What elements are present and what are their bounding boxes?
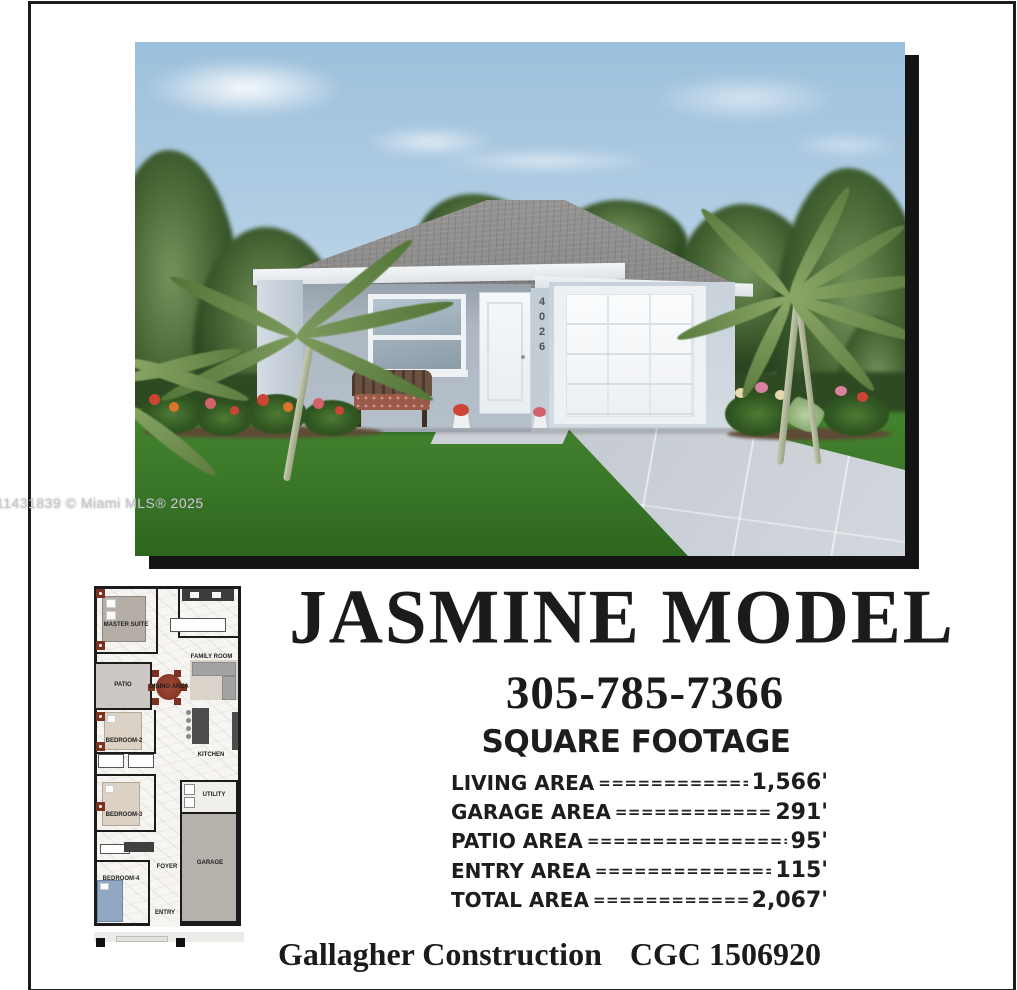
bed <box>97 880 123 922</box>
square-footage-table: LIVING AREA ============================… <box>451 768 828 915</box>
palm-trunk <box>283 342 314 481</box>
chair <box>174 670 181 677</box>
pillow <box>100 883 109 890</box>
sqft-row-total: TOTAL AREA =============================… <box>451 886 828 915</box>
sqft-value: 1,566' <box>752 770 828 795</box>
palm-tree-right <box>690 232 905 492</box>
cloud <box>650 74 840 122</box>
nightstand <box>96 589 105 598</box>
flyer-page: 4026 <box>0 0 1017 990</box>
bath-vanity <box>124 842 154 852</box>
sqft-row-entry: ENTRY AREA =============================… <box>451 856 828 885</box>
sqft-value: 291' <box>775 800 828 825</box>
bath-counter <box>182 589 234 601</box>
stool <box>186 710 191 715</box>
dryer <box>184 797 195 808</box>
sink <box>212 592 221 598</box>
sqft-label: ENTRY AREA <box>451 859 591 883</box>
sqft-label: LIVING AREA <box>451 771 594 795</box>
room-garage <box>180 812 238 923</box>
garage-door <box>566 294 694 417</box>
phone-number: 305-785-7366 <box>295 666 995 720</box>
planter-pot <box>533 416 547 428</box>
flower <box>533 407 546 417</box>
house-photo: 4026 <box>135 42 905 556</box>
room-label-master: MASTER SUITE <box>96 622 156 628</box>
cloud <box>435 150 655 172</box>
pillow <box>105 785 114 793</box>
sqft-label: PATIO AREA <box>451 829 583 853</box>
room-label-bedroom3: BEDROOM-3 <box>98 812 150 818</box>
builder-name: Gallagher Construction <box>278 936 602 973</box>
bed <box>102 782 140 826</box>
entry-step <box>116 936 168 942</box>
sqft-row-living: LIVING AREA ============================… <box>451 768 828 797</box>
cloud <box>145 58 345 118</box>
palm-frond <box>167 271 300 344</box>
house-number: 4026 <box>532 296 548 356</box>
room-label-patio: PATIO <box>102 682 144 688</box>
nightstand <box>96 641 105 650</box>
interior-wall <box>94 652 158 654</box>
interior-wall <box>156 586 158 652</box>
sqft-value: 2,067' <box>752 888 828 913</box>
door-knob <box>521 355 525 359</box>
interior-wall <box>94 830 156 832</box>
sqft-row-garage: GARAGE AREA ============================… <box>451 797 828 826</box>
sqft-value: 95' <box>791 829 828 854</box>
room-label-dining: DINING AREA <box>142 684 196 690</box>
entry-opening <box>150 921 180 927</box>
sqft-label: TOTAL AREA <box>451 888 589 912</box>
porch-post <box>176 938 185 947</box>
sqft-row-patio: PATIO AREA =============================… <box>451 827 828 856</box>
nightstand <box>96 802 105 811</box>
chair <box>174 698 181 705</box>
room-label-kitchen: KITCHEN <box>186 752 236 758</box>
room-label-bedroom2: BEDROOM-2 <box>98 738 150 744</box>
mls-watermark: 11431839 © Miami MLS® 2025 <box>0 495 204 511</box>
leader-line: ========================================… <box>593 891 748 909</box>
room-label-bedroom4: BEDROOM-4 <box>96 876 146 882</box>
closet-box <box>98 754 124 768</box>
bed <box>104 712 142 750</box>
chair <box>152 698 159 705</box>
leader-line: ========================================… <box>587 832 787 850</box>
kitchen-counter <box>232 712 238 750</box>
palm-frond <box>135 399 220 482</box>
pillow <box>106 599 116 608</box>
leader-line: ========================================… <box>598 774 747 792</box>
sqft-label: GARAGE AREA <box>451 800 611 824</box>
leader-line: ========================================… <box>615 803 771 821</box>
square-footage-heading: SQUARE FOOTAGE <box>286 724 986 760</box>
builder-line: Gallagher Construction CGC 1506920 <box>278 936 821 973</box>
flower <box>453 404 469 416</box>
front-door <box>479 292 531 414</box>
model-title: JASMINE MODEL <box>272 579 972 656</box>
interior-wall <box>94 774 156 776</box>
room-label-family: FAMILY ROOM <box>182 654 241 660</box>
leader-line: ========================================… <box>595 862 772 880</box>
interior-wall <box>94 860 150 862</box>
palm-tree-left <box>135 257 405 492</box>
stool <box>186 718 191 723</box>
bed <box>102 596 146 642</box>
sink <box>190 592 199 598</box>
interior-wall <box>154 710 156 752</box>
cloud <box>790 134 900 156</box>
kitchen-island <box>192 708 209 744</box>
stool <box>186 734 191 739</box>
room-label-garage: GARAGE <box>188 860 232 866</box>
door-panel <box>487 302 523 401</box>
bench-leg <box>422 410 427 427</box>
closet-box <box>128 754 154 768</box>
room-label-entry: ENTRY <box>148 910 182 916</box>
room-label-utility: UTILITY <box>194 792 234 798</box>
sofa <box>192 662 236 676</box>
room-label-foyer: FOYER <box>150 864 184 870</box>
floor-plan: MASTER SUITE FAMILY ROOM PATIO DINING AR… <box>94 586 244 958</box>
chair <box>152 670 159 677</box>
sqft-value: 115' <box>775 858 828 883</box>
interior-wall <box>154 774 156 830</box>
stool <box>186 726 191 731</box>
sofa <box>222 676 236 700</box>
pillow <box>106 611 116 620</box>
pillow <box>107 715 116 723</box>
porch-post <box>96 938 105 947</box>
nightstand <box>96 712 105 721</box>
planter-pot <box>453 414 470 428</box>
interior-wall <box>178 636 241 638</box>
plan-label-box <box>170 618 226 632</box>
license-number: CGC 1506920 <box>630 936 821 973</box>
